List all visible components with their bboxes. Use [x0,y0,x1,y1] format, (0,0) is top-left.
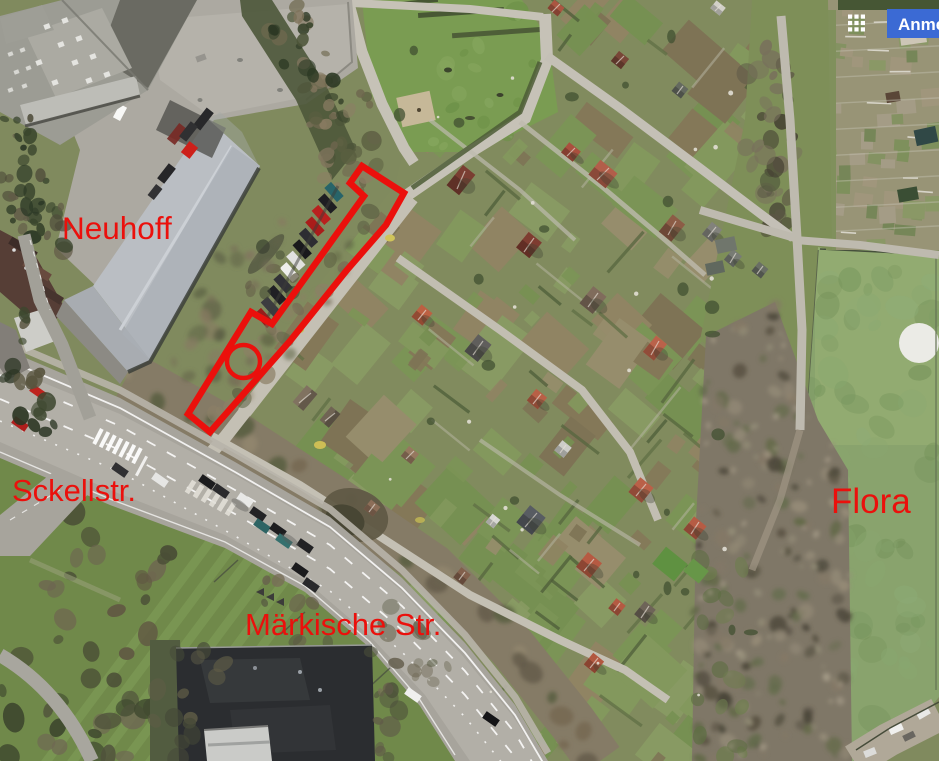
svg-text:Neuhoff: Neuhoff [62,210,172,246]
svg-text:Sckellstr.: Sckellstr. [12,473,136,508]
svg-text:Märkische Str.: Märkische Str. [245,607,441,642]
svg-text:Flora: Flora [831,482,911,521]
svg-text:Anmeld: Anmeld [898,15,939,34]
